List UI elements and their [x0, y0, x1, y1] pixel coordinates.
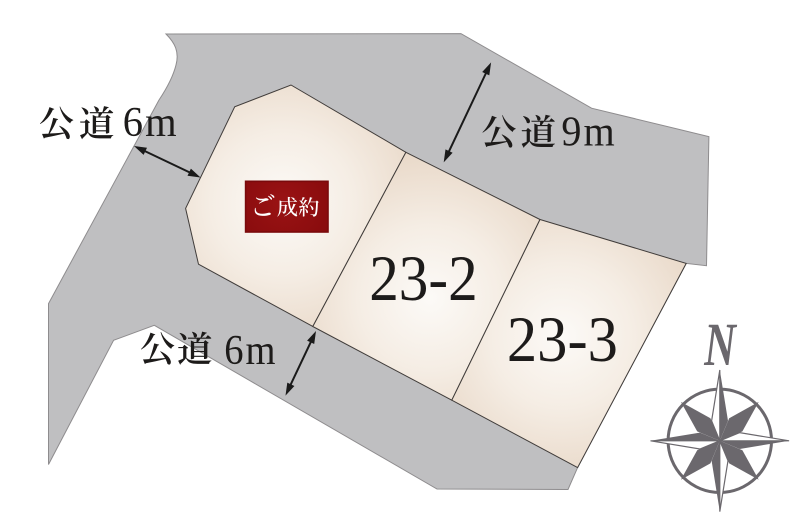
svg-text:23-3: 23-3: [507, 304, 618, 376]
svg-text:N: N: [704, 312, 738, 379]
svg-text:6m: 6m: [123, 100, 179, 146]
svg-text:23-2: 23-2: [369, 243, 478, 314]
svg-text:6m: 6m: [224, 328, 277, 374]
svg-text:9m: 9m: [561, 109, 617, 155]
